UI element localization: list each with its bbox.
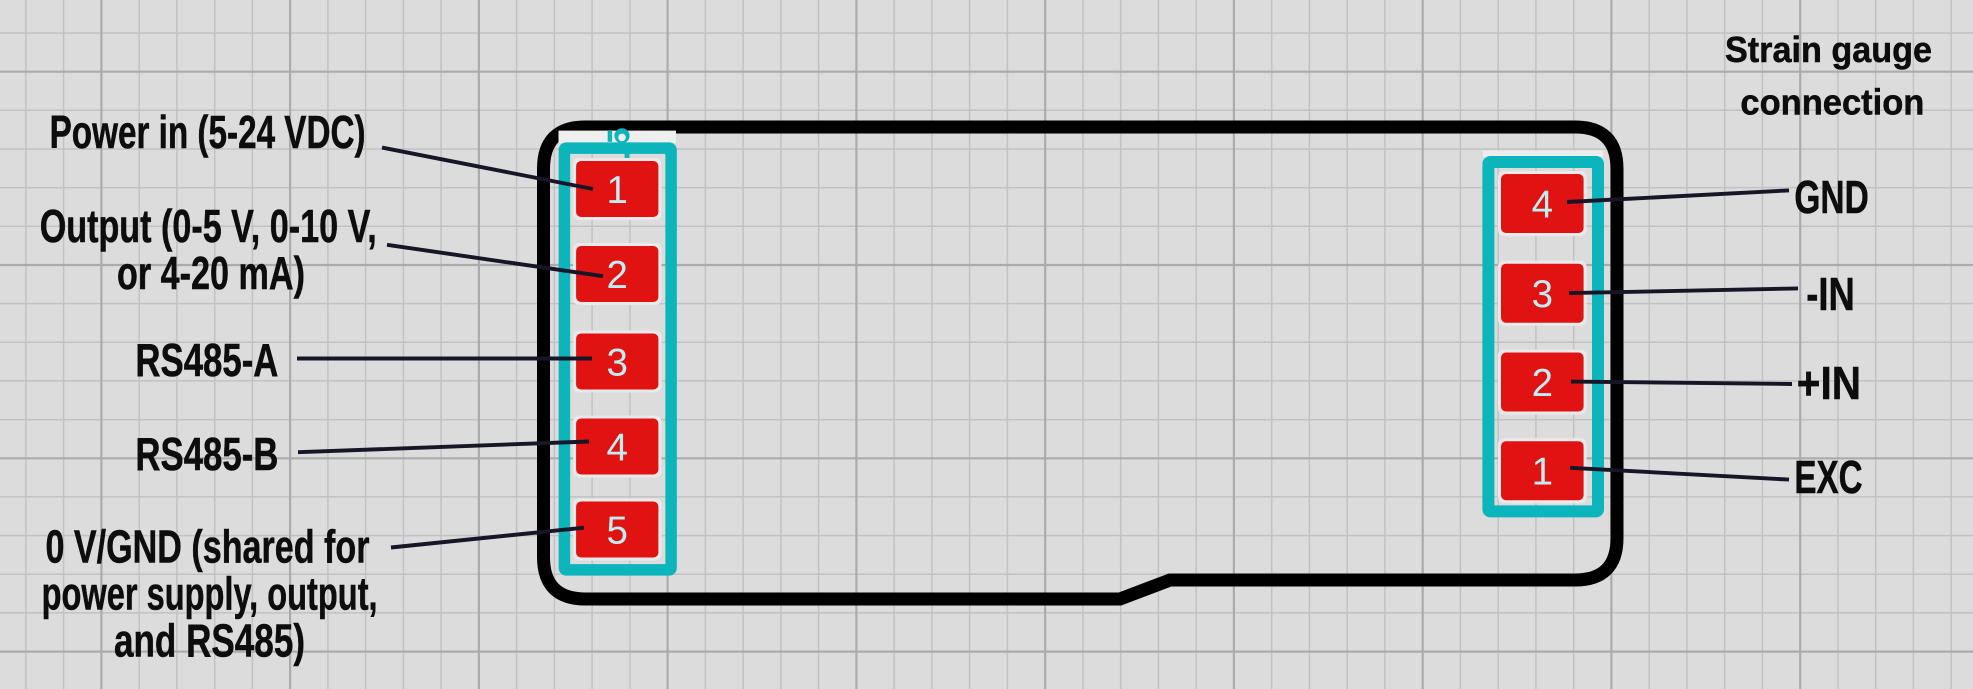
svg-text:connection: connection bbox=[1740, 82, 1924, 123]
svg-text:Output (0-5 V, 0-10 V,: Output (0-5 V, 0-10 V, bbox=[40, 200, 377, 252]
svg-text:0 V/GND (shared for: 0 V/GND (shared for bbox=[46, 521, 370, 573]
svg-text:power supply, output,: power supply, output, bbox=[42, 568, 378, 620]
svg-text:4: 4 bbox=[606, 427, 627, 470]
svg-text:GND: GND bbox=[1794, 171, 1869, 223]
svg-text:1: 1 bbox=[1532, 451, 1553, 494]
svg-text:or 4-20 mA): or 4-20 mA) bbox=[117, 247, 305, 299]
svg-text:-IN: -IN bbox=[1806, 268, 1855, 320]
svg-text:4: 4 bbox=[1532, 184, 1553, 227]
svg-text:RS485-B: RS485-B bbox=[135, 428, 278, 480]
svg-text:3: 3 bbox=[1532, 273, 1553, 316]
svg-text:2: 2 bbox=[606, 254, 627, 297]
svg-text:3: 3 bbox=[606, 342, 627, 385]
svg-text:Power in (5-24 VDC): Power in (5-24 VDC) bbox=[50, 106, 366, 158]
svg-text:EXC: EXC bbox=[1794, 451, 1862, 503]
svg-text:Strain gauge: Strain gauge bbox=[1725, 29, 1932, 70]
svg-text:RS485-A: RS485-A bbox=[135, 334, 278, 386]
svg-text:5: 5 bbox=[606, 510, 627, 553]
svg-text:2: 2 bbox=[1532, 362, 1553, 405]
svg-text:+IN: +IN bbox=[1797, 357, 1861, 409]
svg-text:1: 1 bbox=[606, 169, 627, 212]
svg-text:and RS485): and RS485) bbox=[114, 615, 305, 667]
